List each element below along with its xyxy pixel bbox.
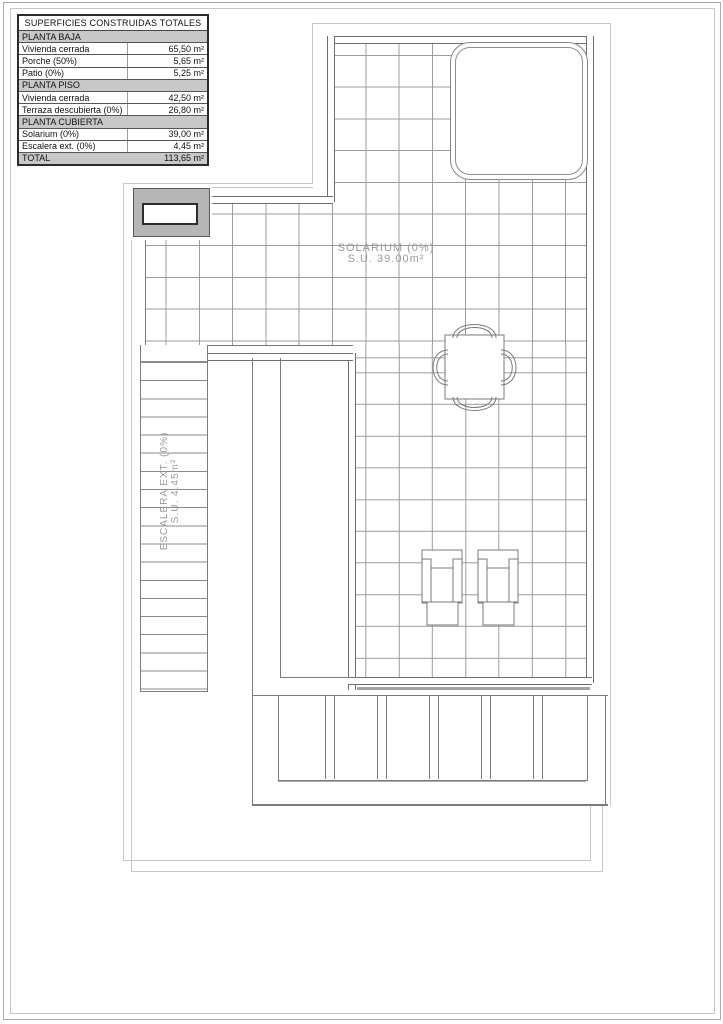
row-label: Porche (50%) [19,55,128,66]
plan-sheet: SOLARIUM (0%) S.U. 39.00m² ESCALERA EXT.… [0,0,723,1024]
row-value: 5,25 m² [128,68,207,78]
row-label: Solarium (0%) [19,129,128,140]
table-row: Solarium (0%) 39,00 m² [19,129,207,141]
row-label: PLANTA PISO [19,80,128,90]
row-value: 113,65 m² [128,153,207,163]
table-row-total: TOTAL 113,65 m² [19,153,207,164]
table-row: Patio (0%) 5,25 m² [19,68,207,80]
row-label: Vivienda cerrada [19,92,128,103]
table-row: Escalera ext. (0%) 4,45 m² [19,141,207,153]
row-value: 26,80 m² [128,105,207,115]
sun-lounger [478,550,518,625]
areas-table-title: SUPERFICIES CONSTRUIDAS TOTALES [19,16,207,31]
row-label: Terraza descubierta (0%) [19,104,128,115]
escalera-label: ESCALERA EXT. (0%) S.U. 4.45m² [159,426,183,556]
row-value: 39,00 m² [128,129,207,139]
row-label: PLANTA CUBIERTA [19,117,128,127]
row-label: TOTAL [19,153,128,163]
row-value: 42,50 m² [128,93,207,103]
row-label: PLANTA BAJA [19,32,128,42]
table-row: Vivienda cerrada 42,50 m² [19,92,207,104]
table-row-section: PLANTA PISO [19,80,207,92]
escalera-label-line1: ESCALERA EXT. (0%) [159,426,170,556]
sun-lounger [422,550,462,625]
table-row-section: PLANTA CUBIERTA [19,116,207,128]
table-row: Terraza descubierta (0%) 26,80 m² [19,104,207,116]
table-row-section: PLANTA BAJA [19,31,207,43]
solarium-label-line2: S.U. 39.00m² [306,254,466,265]
areas-table: SUPERFICIES CONSTRUIDAS TOTALES PLANTA B… [17,14,209,166]
row-value: 65,50 m² [128,44,207,54]
row-value: 4,45 m² [128,141,207,151]
table-row: Vivienda cerrada 65,50 m² [19,43,207,55]
solarium-label: SOLARIUM (0%) S.U. 39.00m² [306,243,466,265]
table-row: Porche (50%) 5,65 m² [19,55,207,67]
row-value: 5,65 m² [128,56,207,66]
row-label: Vivienda cerrada [19,43,128,54]
dining-table [445,335,504,399]
row-label: Patio (0%) [19,68,128,79]
escalera-label-line2: S.U. 4.45m² [170,426,181,556]
row-label: Escalera ext. (0%) [19,141,128,152]
